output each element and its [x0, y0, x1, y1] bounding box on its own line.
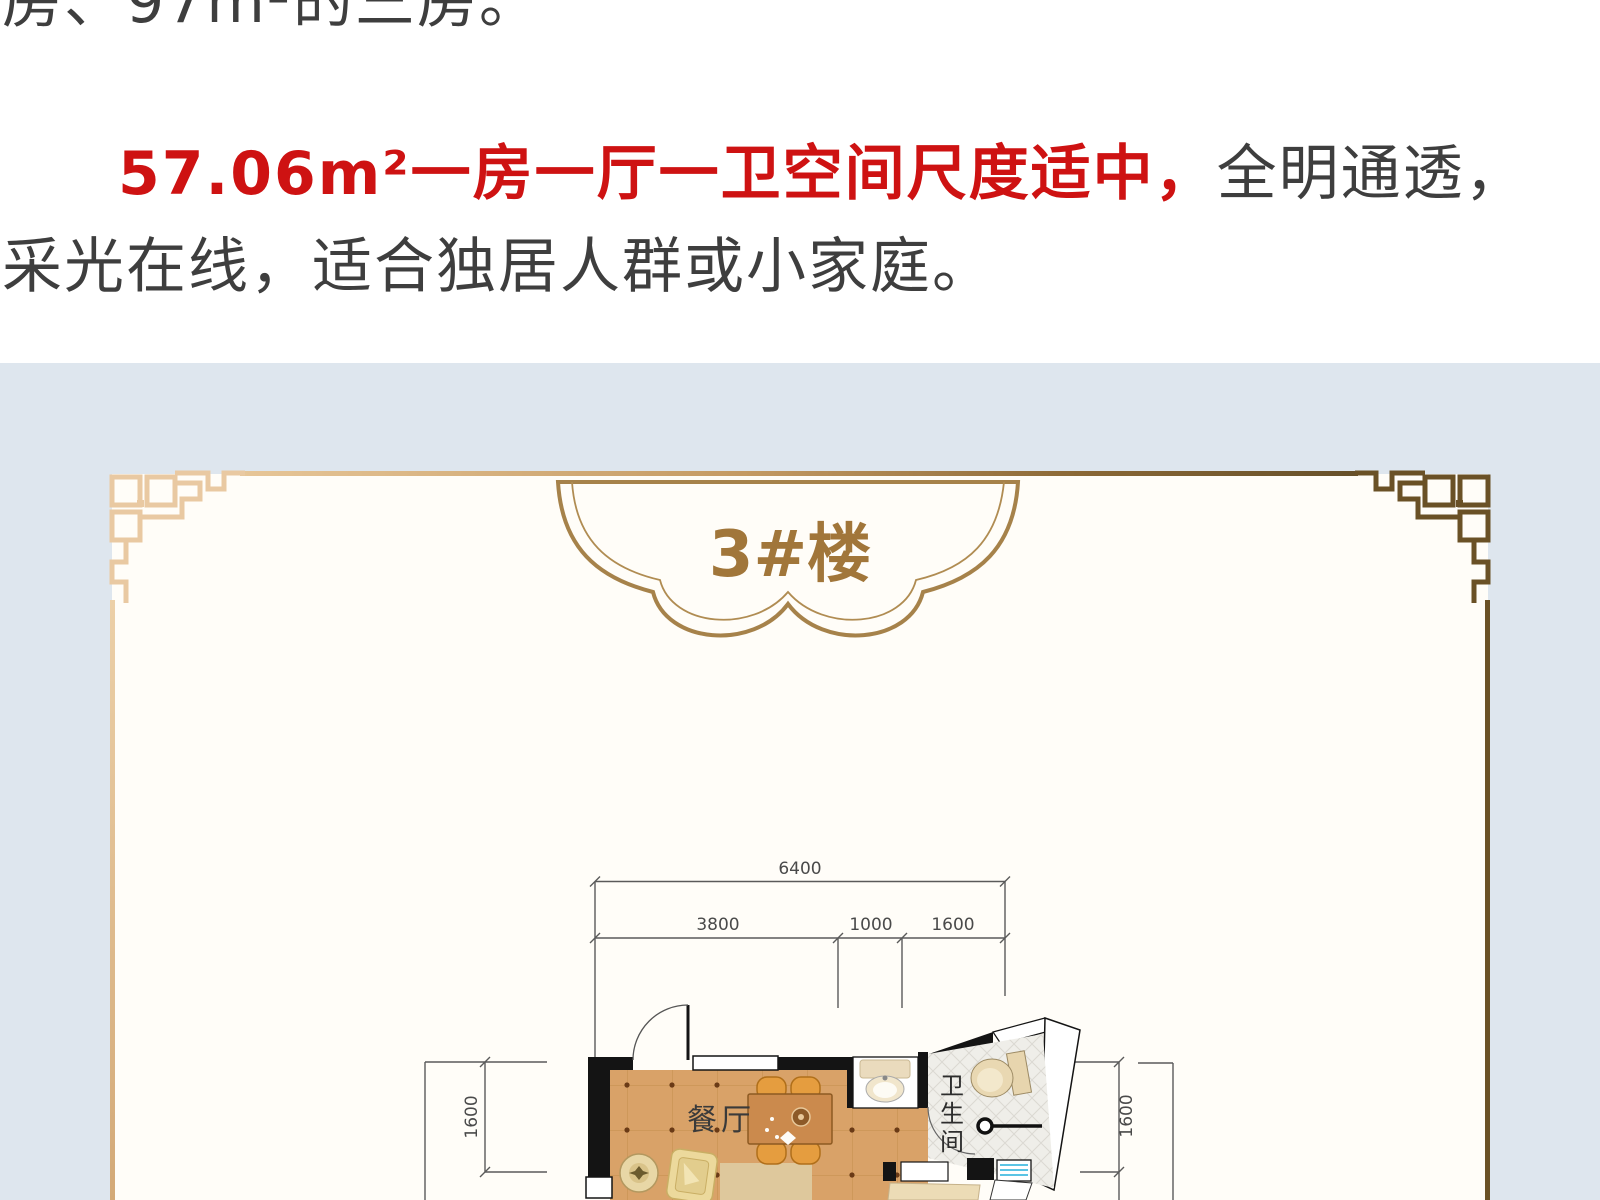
side-table [620, 1154, 658, 1192]
dim-total-width: 6400 [778, 859, 821, 879]
dim-segment-1000: 1000 [849, 915, 892, 935]
dimension-lines-top [590, 877, 1010, 1058]
dining-room-label: 餐厅 [687, 1103, 755, 1138]
dimension-left [425, 1057, 547, 1200]
paragraph-line-2: 采光在线，适合独居人群或小家庭。 [2, 233, 994, 301]
frame-border-right [1485, 600, 1490, 1200]
frame-corner-ornament-left [100, 463, 245, 608]
entry-door-swing-arc [633, 1005, 688, 1060]
bathroom-label-char-3: 间 [940, 1128, 964, 1156]
frame-corner-ornament-right [1355, 463, 1500, 608]
dim-segment-3800: 3800 [696, 915, 739, 935]
window-left-wall [586, 1177, 612, 1198]
highlight-red-text: 57.06m²一房一厅一卫空间尺度适中， [118, 139, 1217, 209]
bathroom-label-char-2: 生 [940, 1100, 964, 1128]
floor-plan: 6400 3800 1000 1600 1600 1600 [420, 828, 1180, 1200]
armchair [666, 1148, 719, 1200]
sink-faucet [883, 1076, 888, 1081]
door-leaf-fragment [990, 1180, 1032, 1200]
wall-bathroom-divider [918, 1052, 928, 1108]
building-banner: 3#楼 [538, 468, 1062, 673]
wall-stub-small [883, 1162, 896, 1181]
dim-segment-1600: 1600 [931, 915, 974, 935]
wall-stub-bottom [967, 1158, 994, 1180]
window-top-wall [693, 1056, 778, 1070]
body-text-1: 全明通透， [1217, 139, 1527, 209]
intro-line-clipped: 房、97m²的三房。 [2, 0, 541, 36]
rug [720, 1163, 812, 1200]
bathroom-window-blue [997, 1160, 1031, 1181]
bathroom-label-char-1: 卫 [940, 1072, 964, 1100]
dim-left-height: 1600 [462, 1095, 482, 1138]
banner-building-label: 3#楼 [709, 518, 871, 592]
bedroom-door-frame [901, 1162, 948, 1181]
vanity-cabinet [860, 1060, 910, 1078]
frame-border-left [110, 600, 115, 1200]
paragraph-line-1: 57.06m²一房一厅一卫空间尺度适中，全明通透， [118, 140, 1527, 208]
dim-right-height: 1600 [1117, 1094, 1137, 1137]
sink-basin-inner [873, 1082, 897, 1098]
poster-panel: 3#楼 6400 3800 [0, 363, 1600, 1200]
wall-stub-vanity [847, 1057, 853, 1108]
bed-fragment [888, 1183, 980, 1200]
